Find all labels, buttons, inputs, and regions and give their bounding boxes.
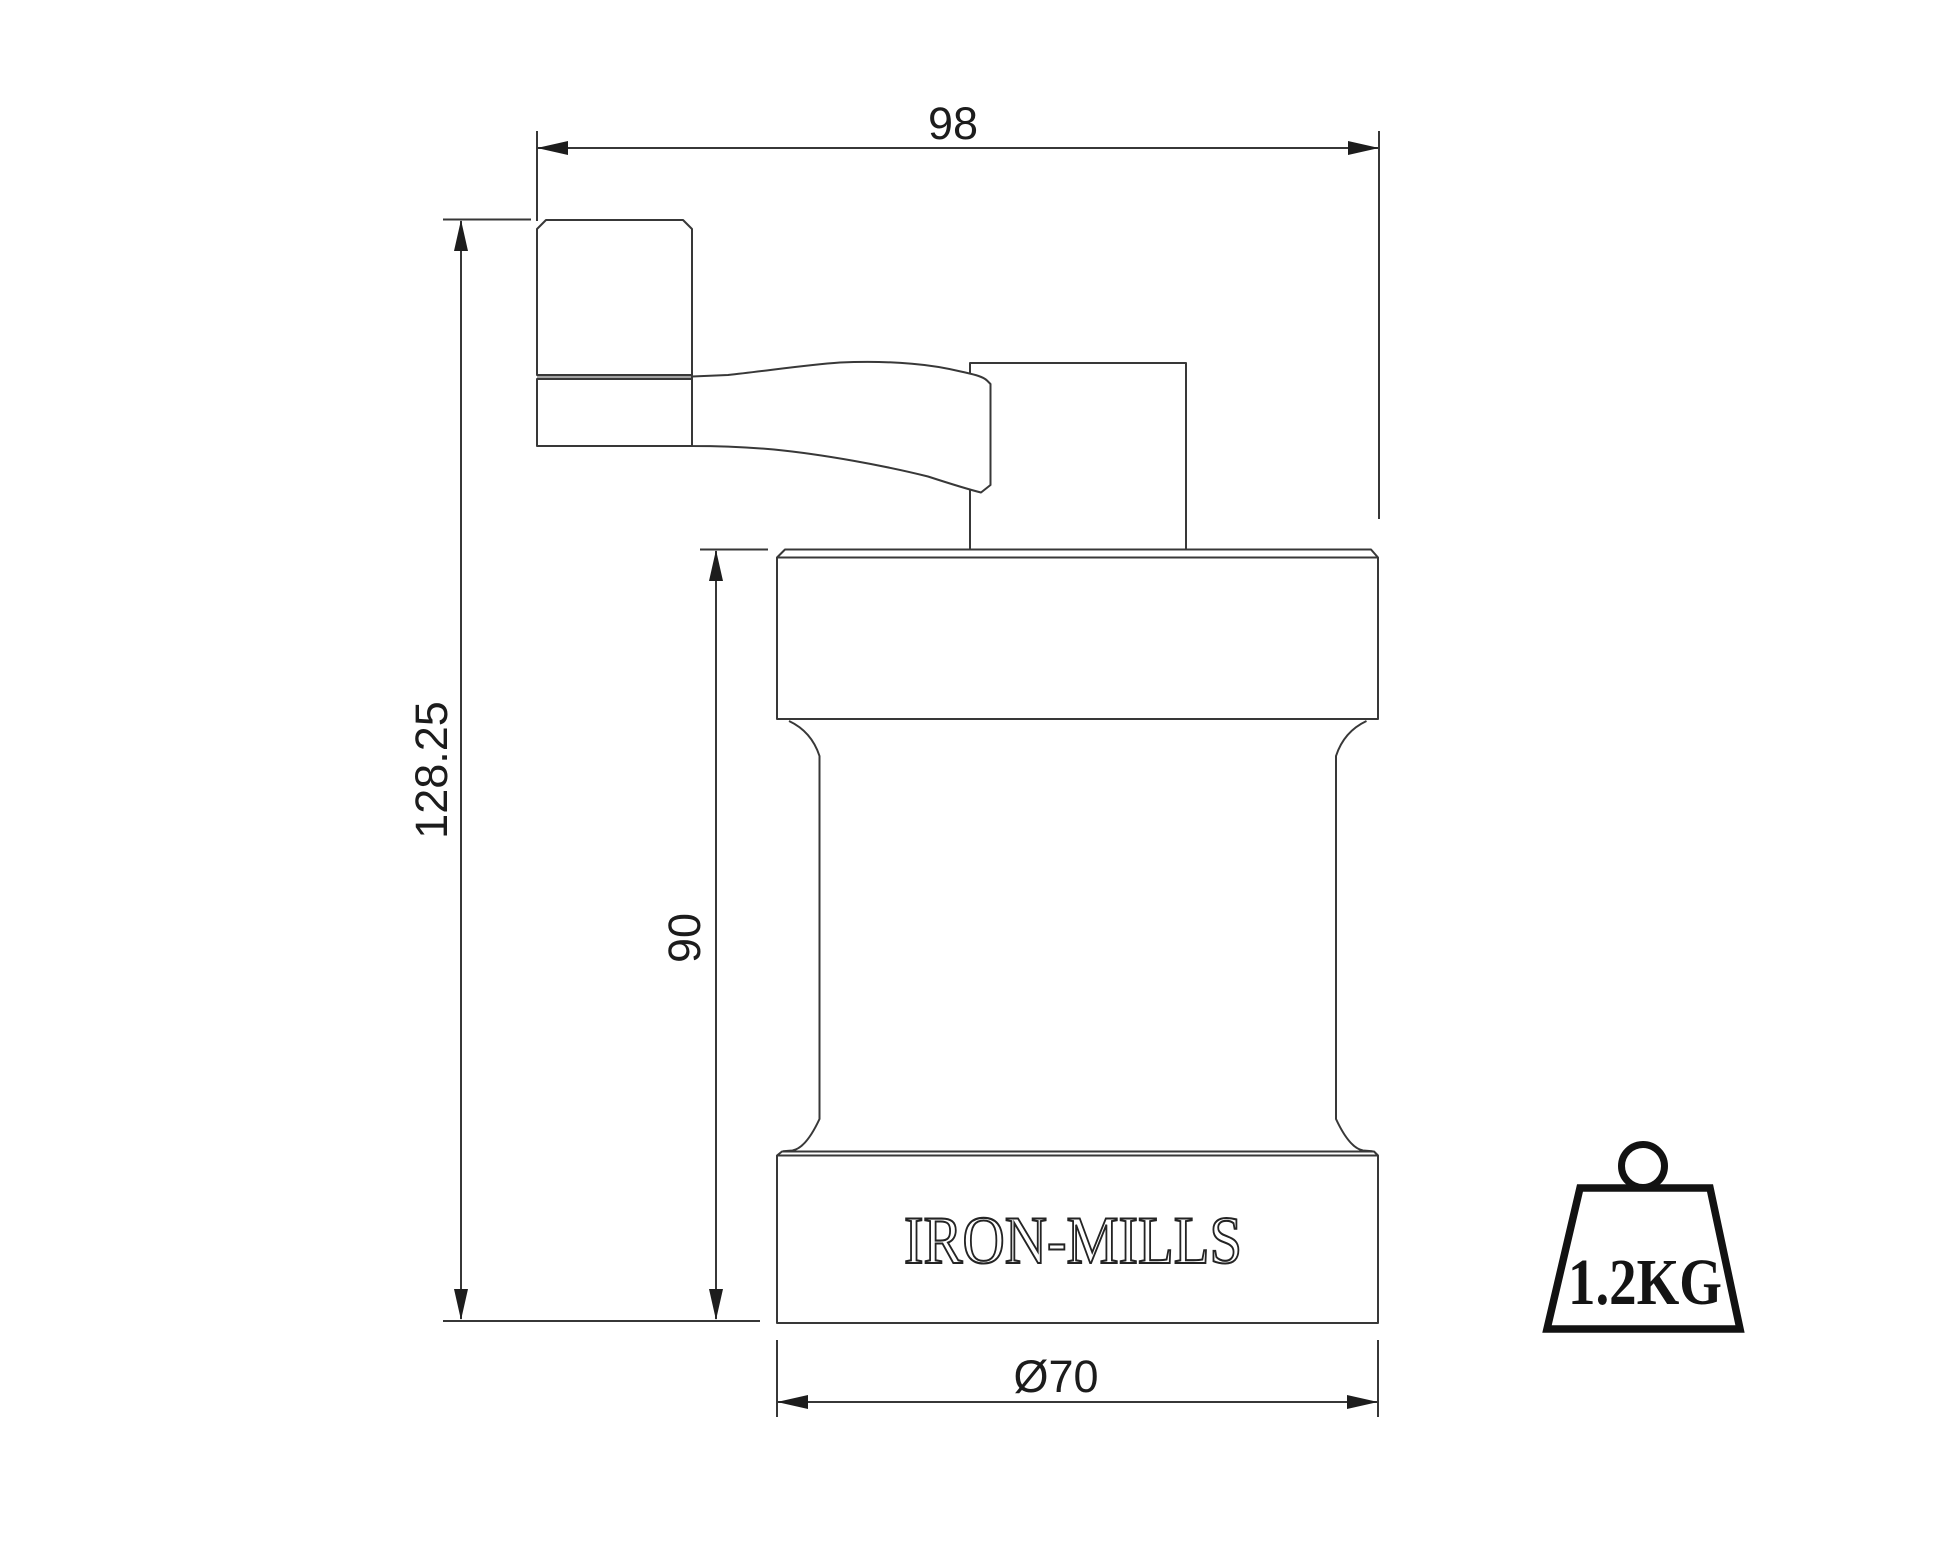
svg-text:90: 90	[659, 913, 710, 963]
svg-text:128.25: 128.25	[406, 701, 457, 839]
svg-text:98: 98	[928, 98, 978, 149]
svg-text:IRON-MILLS: IRON-MILLS	[904, 1202, 1242, 1278]
svg-text:1.2KG: 1.2KG	[1568, 1246, 1722, 1319]
svg-text:Ø70: Ø70	[1013, 1351, 1098, 1402]
